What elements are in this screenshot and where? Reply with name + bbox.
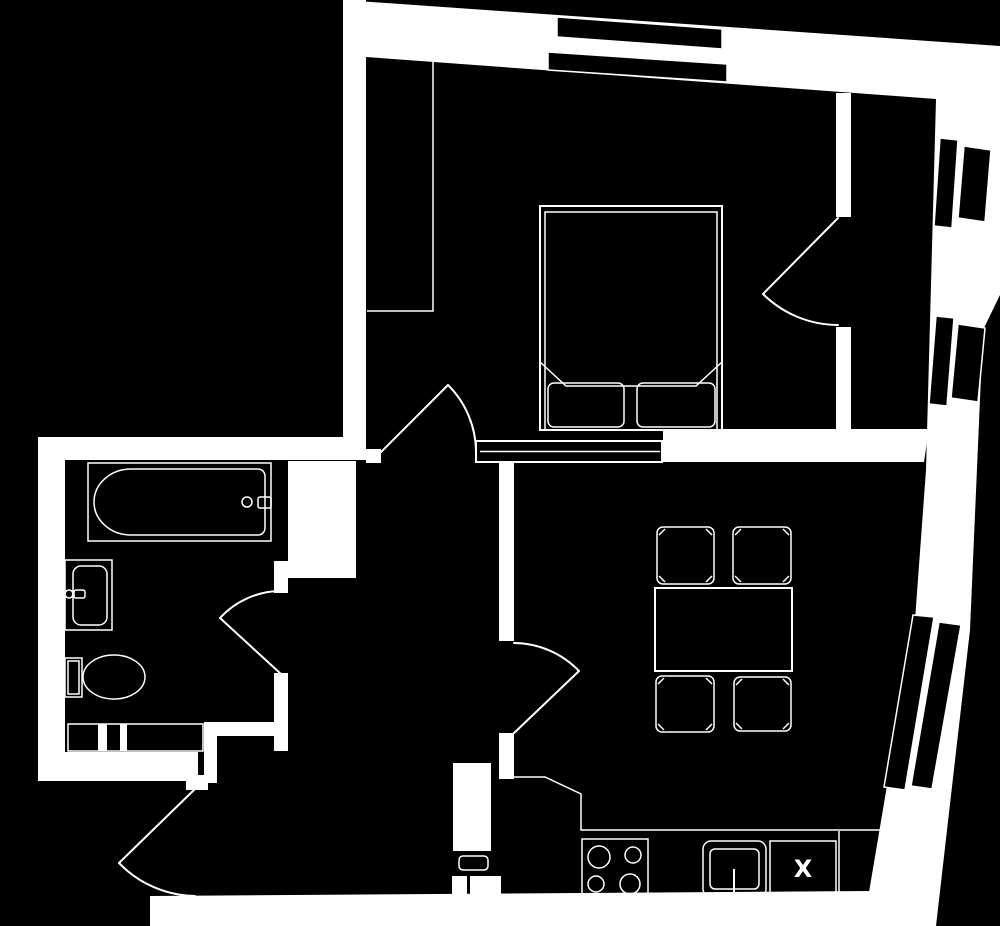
wall-bedroom-door-jamb-upper	[836, 93, 851, 217]
wall-living-left-upper	[499, 463, 514, 641]
floor-plan-page: X	[0, 0, 1000, 926]
side-window-middle	[929, 316, 985, 406]
wall-bedroom-living	[663, 429, 929, 462]
wall-bathroom-door-jamb-lower	[274, 673, 288, 751]
wall-bathroom-duct-foot	[274, 561, 356, 578]
wall-left-upper	[343, 0, 366, 442]
floor-plan: X	[0, 0, 1000, 926]
wall-hall-door-jamb-left	[366, 449, 381, 463]
wall-bathroom-left	[38, 437, 65, 778]
wall-bedroom-door-jamb-lower	[836, 327, 851, 431]
appliance-x-label: X	[794, 855, 813, 883]
wall-kitchen-pier-a	[452, 876, 467, 901]
wall-bathroom-bottom	[38, 752, 198, 781]
wall-bathroom-top	[38, 437, 366, 460]
wall-kitchen-pier-b	[470, 876, 501, 901]
wall-bathroom-duct	[288, 461, 356, 571]
wall-hall-top-cavity	[476, 441, 662, 462]
wall-living-left-lower	[499, 733, 514, 779]
wall-hall-niche-left	[204, 722, 217, 783]
tall-unit	[453, 763, 491, 851]
